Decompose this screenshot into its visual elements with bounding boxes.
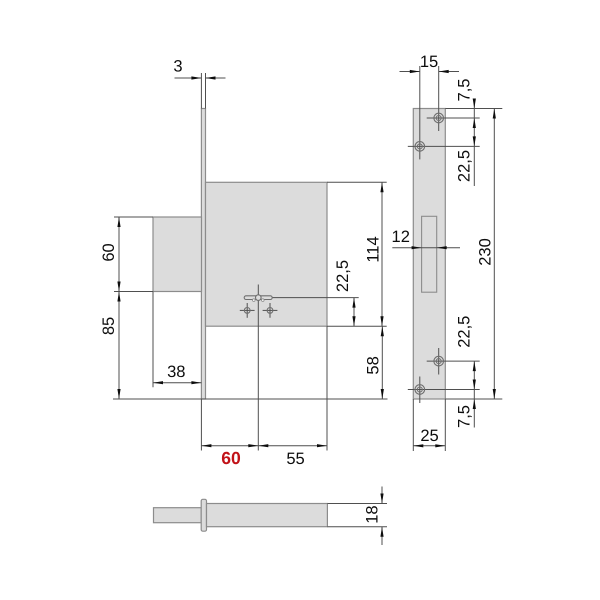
svg-text:60: 60 [221, 448, 241, 468]
svg-text:7,5: 7,5 [456, 79, 474, 102]
svg-text:58: 58 [365, 356, 383, 374]
svg-text:3: 3 [173, 57, 182, 75]
svg-text:230: 230 [477, 238, 495, 266]
svg-text:85: 85 [100, 317, 118, 335]
svg-text:22,5: 22,5 [456, 150, 474, 182]
svg-text:22,5: 22,5 [334, 260, 352, 292]
svg-text:38: 38 [167, 363, 185, 381]
svg-text:12: 12 [392, 228, 410, 246]
svg-text:25: 25 [420, 427, 438, 445]
svg-text:18: 18 [364, 505, 382, 523]
svg-text:60: 60 [100, 243, 118, 261]
svg-text:55: 55 [286, 450, 304, 468]
svg-text:15: 15 [420, 53, 438, 71]
svg-text:22,5: 22,5 [456, 316, 474, 348]
svg-text:7,5: 7,5 [456, 405, 474, 428]
svg-text:114: 114 [365, 236, 383, 262]
